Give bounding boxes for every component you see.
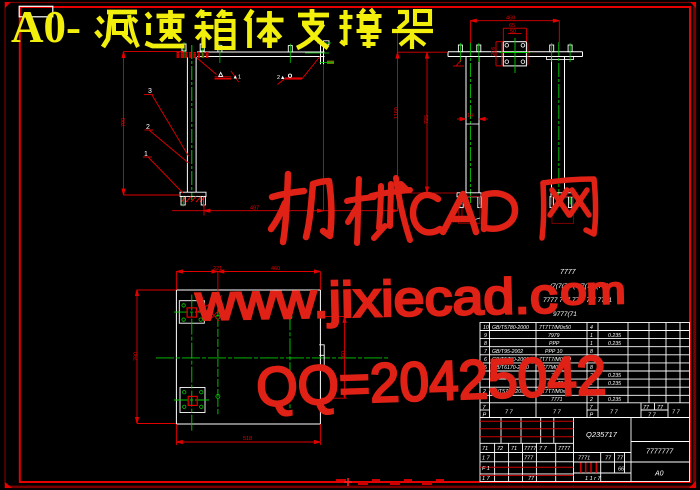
svg-text:1 7: 1 7 [482, 456, 491, 462]
svg-text:1: 1 [590, 333, 593, 339]
svg-text:0.235: 0.235 [608, 397, 621, 403]
svg-text:77: 77 [617, 456, 624, 462]
svg-text:7 7: 7 7 [648, 413, 657, 419]
svg-text:77: 77 [657, 405, 664, 411]
svg-text:7 7: 7 7 [539, 446, 548, 452]
svg-text:0.235: 0.235 [608, 333, 621, 339]
svg-text:7 7: 7 7 [610, 410, 619, 416]
svg-text:▲1: ▲1 [233, 75, 242, 81]
svg-text:790: 790 [121, 118, 127, 127]
svg-text:216: 216 [491, 47, 497, 56]
svg-text:790: 790 [134, 352, 140, 361]
svg-text:7777: 7777 [558, 446, 571, 452]
svg-text:71: 71 [482, 446, 488, 452]
svg-text:460: 460 [271, 266, 280, 272]
svg-text:71: 71 [511, 446, 517, 452]
svg-text:7T7T7/M0x50: 7T7T7/M0x50 [539, 325, 571, 331]
svg-text:14: 14 [467, 113, 473, 119]
svg-text:10: 10 [483, 325, 489, 331]
svg-text:1: 1 [144, 151, 148, 158]
svg-text:2: 2 [146, 124, 150, 131]
svg-text:777: 777 [524, 456, 534, 462]
svg-text:9: 9 [484, 333, 487, 339]
svg-text:2▲: 2▲ [277, 75, 286, 81]
svg-text:7777777: 7777777 [646, 449, 674, 456]
svg-text:0.235: 0.235 [608, 341, 621, 347]
svg-text:GB/T5780-2000: GB/T5780-2000 [492, 325, 529, 331]
svg-text:77: 77 [643, 405, 650, 411]
svg-text:7771: 7771 [578, 456, 590, 462]
svg-text:1160: 1160 [394, 107, 400, 119]
svg-text:460: 460 [506, 16, 515, 22]
svg-text:7 7: 7 7 [672, 410, 681, 416]
svg-text:1 1 r 7: 1 1 r 7 [585, 476, 602, 482]
svg-text:3: 3 [148, 88, 152, 95]
svg-text:0.235: 0.235 [608, 381, 621, 387]
svg-text:0.235: 0.235 [608, 373, 621, 379]
svg-text:518: 518 [243, 436, 252, 442]
svg-text:1 7: 1 7 [482, 476, 491, 482]
svg-text:8: 8 [484, 341, 487, 347]
svg-text:221: 221 [213, 266, 222, 272]
svg-text:A0-: A0- [11, 2, 81, 52]
svg-text:QQ=20425042: QQ=20425042 [255, 344, 607, 418]
svg-text:50: 50 [510, 29, 516, 35]
svg-text:77: 77 [605, 456, 612, 462]
svg-text:497: 497 [250, 206, 259, 212]
svg-text:7777: 7777 [524, 446, 537, 452]
svg-text:77: 77 [528, 476, 535, 482]
svg-text:P: P [483, 413, 487, 419]
svg-text:F 1: F 1 [482, 466, 490, 472]
svg-text:7 7: 7 7 [553, 410, 562, 416]
svg-text:A0: A0 [654, 471, 664, 478]
svg-text:P: P [590, 413, 594, 419]
svg-text:7979: 7979 [548, 333, 560, 339]
svg-text:72: 72 [497, 446, 503, 452]
svg-text:Q235717: Q235717 [586, 430, 618, 439]
svg-text:7 7: 7 7 [505, 410, 514, 416]
svg-text:4: 4 [590, 325, 593, 331]
svg-text:66: 66 [618, 467, 625, 473]
svg-text:725: 725 [424, 115, 430, 124]
